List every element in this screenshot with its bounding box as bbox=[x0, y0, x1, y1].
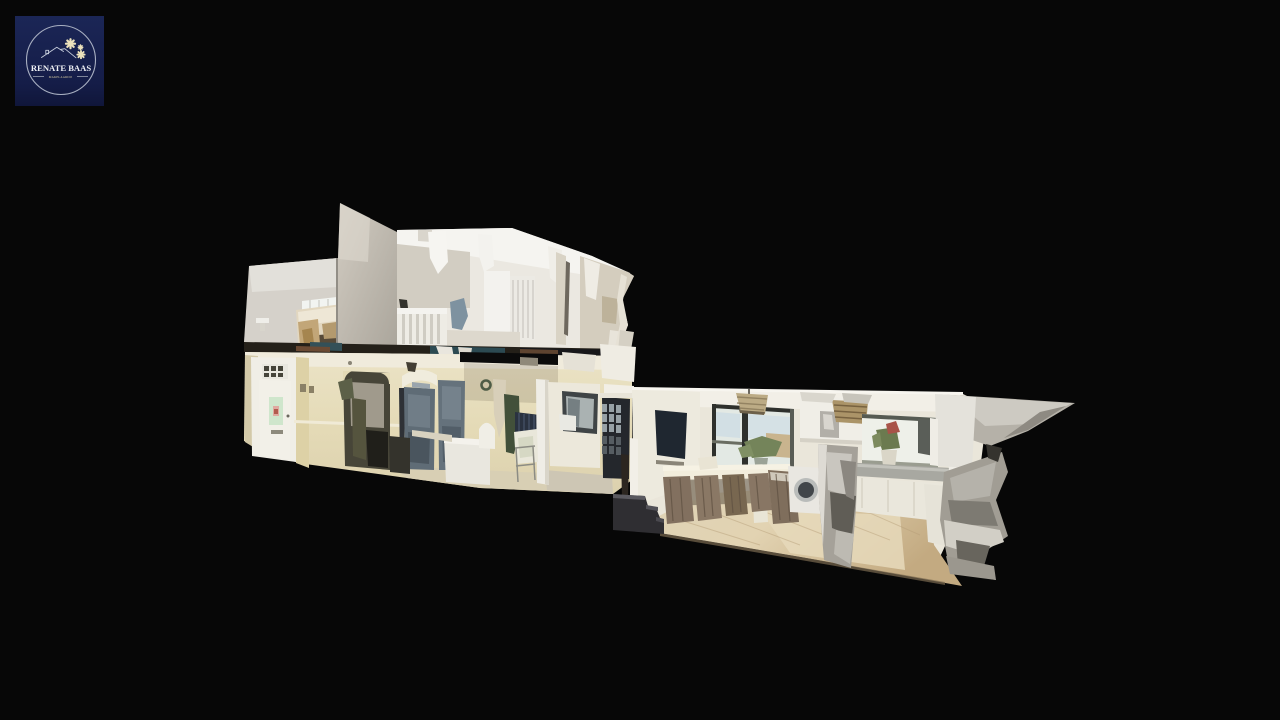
svg-text:MAKELAARDIJ: MAKELAARDIJ bbox=[49, 75, 73, 79]
svg-text:RENATE BAAS: RENATE BAAS bbox=[31, 63, 91, 73]
